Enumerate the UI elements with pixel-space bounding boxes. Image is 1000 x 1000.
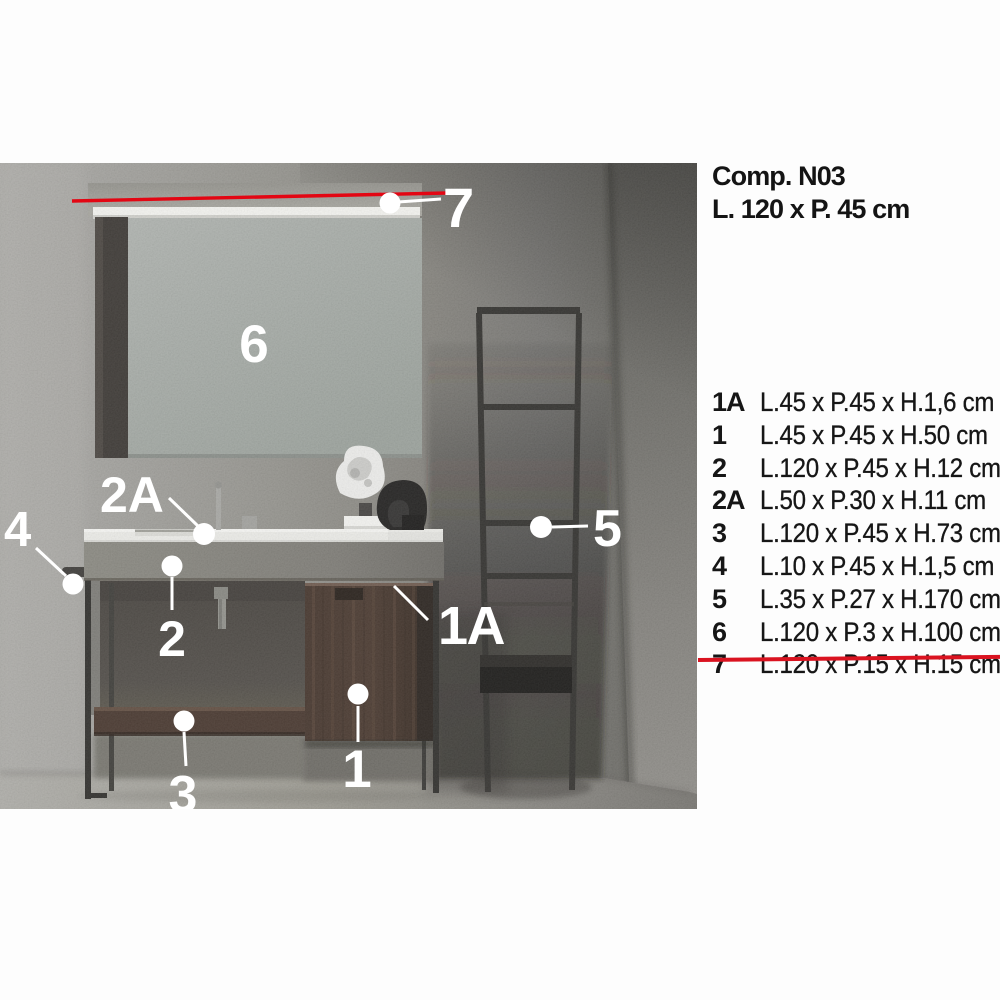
svg-text:1: 1 [342, 740, 371, 799]
svg-text:6: 6 [239, 315, 268, 374]
svg-text:2: 2 [158, 611, 186, 667]
svg-text:2A: 2A [100, 467, 164, 523]
svg-text:7: 7 [443, 176, 474, 239]
svg-text:3: 3 [169, 766, 198, 809]
svg-text:1A: 1A [438, 596, 505, 656]
svg-text:4: 4 [4, 503, 31, 557]
svg-text:5: 5 [593, 500, 622, 558]
